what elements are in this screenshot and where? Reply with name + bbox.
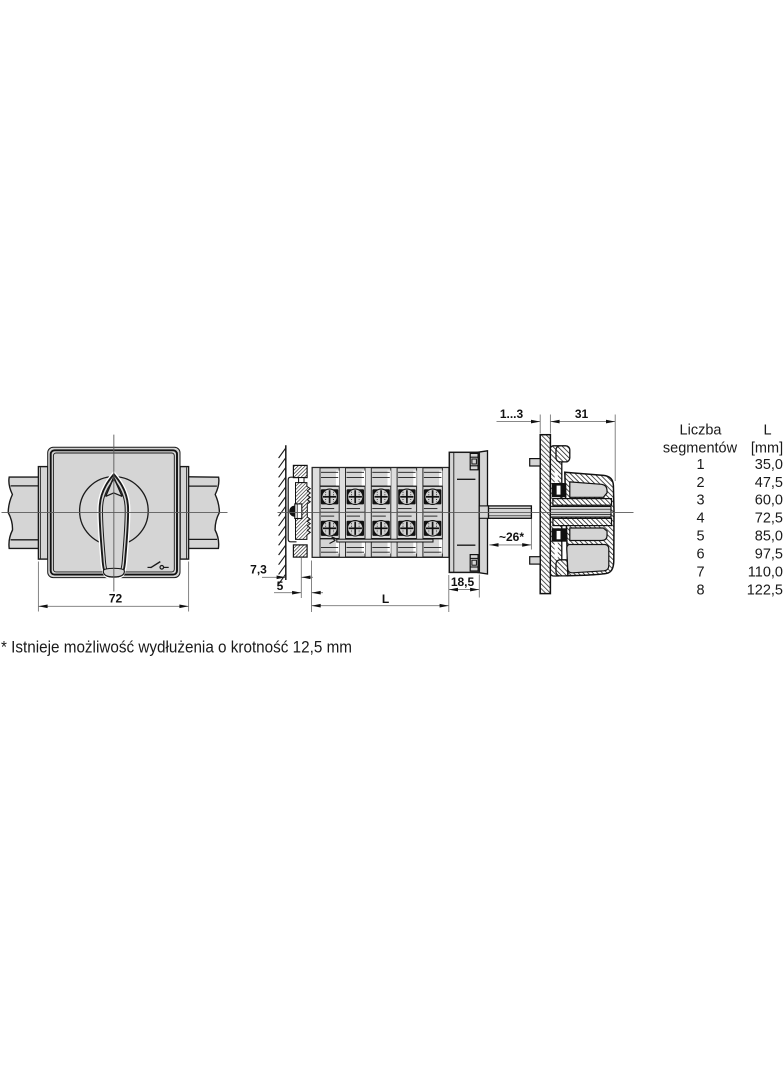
svg-text:72,5: 72,5 — [755, 511, 783, 527]
svg-text:35,0: 35,0 — [755, 457, 783, 473]
svg-text:L: L — [382, 592, 389, 606]
svg-text:1...3: 1...3 — [500, 407, 524, 421]
svg-text:110,0: 110,0 — [748, 565, 783, 581]
svg-text:7,3: 7,3 — [250, 562, 267, 576]
svg-text:97,5: 97,5 — [755, 547, 783, 563]
svg-text:L: L — [763, 423, 771, 439]
svg-text:85,0: 85,0 — [755, 529, 783, 545]
svg-text:18,5: 18,5 — [451, 575, 475, 589]
svg-text:3: 3 — [696, 493, 704, 509]
svg-text:6: 6 — [696, 547, 704, 563]
svg-text:8: 8 — [696, 583, 704, 599]
svg-text:4: 4 — [696, 511, 704, 527]
svg-text:* Istnieje możliwość wydłużeni: * Istnieje możliwość wydłużenia o krotno… — [1, 638, 352, 657]
svg-text:[mm]: [mm] — [751, 440, 783, 456]
svg-text:1: 1 — [696, 457, 704, 473]
svg-text:~26*: ~26* — [499, 530, 524, 544]
svg-text:2: 2 — [696, 475, 704, 491]
svg-text:31: 31 — [575, 407, 589, 421]
svg-text:5: 5 — [277, 579, 284, 593]
svg-text:122,5: 122,5 — [747, 583, 783, 599]
svg-text:segmentów: segmentów — [663, 440, 738, 456]
svg-text:72: 72 — [109, 592, 123, 606]
svg-text:5: 5 — [696, 529, 704, 545]
svg-text:47,5: 47,5 — [755, 475, 783, 491]
svg-text:60,0: 60,0 — [755, 493, 783, 509]
svg-text:7: 7 — [696, 565, 704, 581]
svg-text:Liczba: Liczba — [680, 423, 723, 439]
